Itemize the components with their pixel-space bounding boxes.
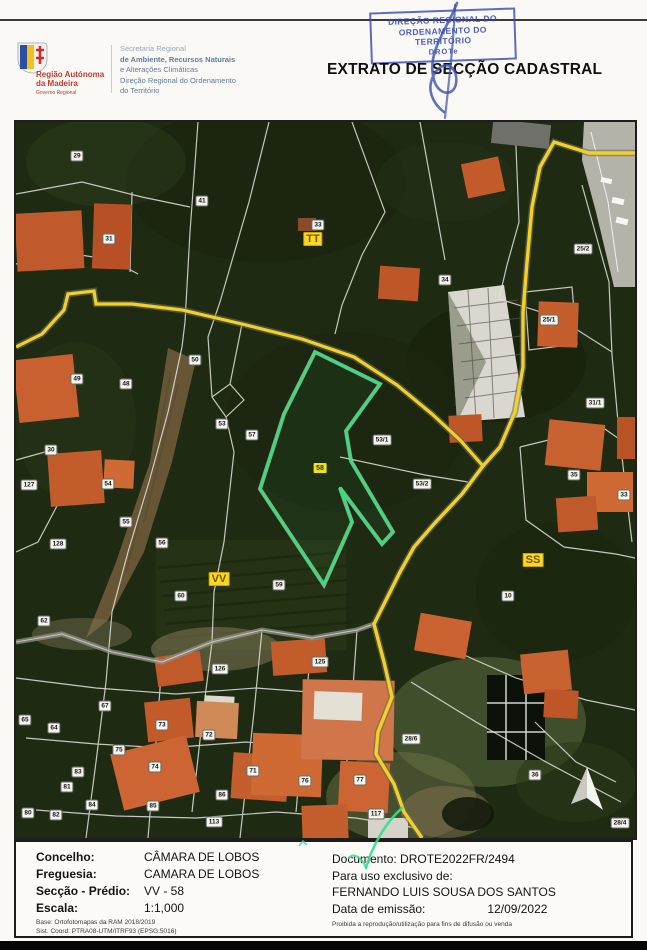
parcel-label-48: 48	[119, 379, 132, 390]
parcel-label-77: 77	[353, 775, 366, 786]
parcel-label-50: 50	[188, 355, 201, 366]
handwritten-signature	[402, 0, 492, 125]
table-row: Concelho:CÂMARA DE LOBOS	[36, 849, 316, 866]
table-row: Secção - Prédio:VV - 58	[36, 883, 316, 900]
parcel-label-30: 30	[44, 445, 57, 456]
parcel-label-56: 56	[155, 538, 168, 549]
row-label: Concelho:	[36, 849, 144, 866]
parcel-label-113: 113	[206, 817, 223, 828]
parcel-label-62: 62	[37, 616, 50, 627]
table-row: Freguesia:CAMARA DE LOBOS	[36, 866, 316, 883]
parcel-label-33: 33	[617, 490, 630, 501]
secretariat-line: do Território	[120, 86, 305, 97]
parcel-label-64: 64	[47, 723, 60, 734]
parcel-label-74: 74	[148, 762, 161, 773]
parcel-label-25/1: 25/1	[540, 315, 559, 326]
row-label: Escala:	[36, 900, 144, 917]
scan-top-line	[0, 19, 647, 21]
row-value: 1:1,000	[144, 900, 184, 917]
section-label-VV: VV	[209, 572, 230, 586]
parcel-label-layer: 294131333425/225/15049485357301275455128…	[16, 122, 635, 838]
section-label-SS: SS	[523, 553, 544, 567]
parcel-label-57: 57	[245, 430, 258, 441]
parcel-label-31/1: 31/1	[586, 398, 605, 409]
parcel-label-53/2: 53/2	[413, 479, 432, 490]
base-source-line: Sist. Coord: PTRA08-UTM/ITRF93 (EPSG:501…	[36, 928, 177, 937]
secretariat-line: Secretaria Regional	[120, 44, 305, 55]
region-name: Região Autónoma da Madeira	[36, 70, 104, 88]
parcel-label-59: 59	[272, 580, 285, 591]
parcel-label-85: 85	[146, 801, 159, 812]
parcel-label-83: 83	[71, 767, 84, 778]
region-sub: Governo Regional	[36, 90, 76, 96]
row-value: VV - 58	[144, 883, 184, 900]
parcel-label-29: 29	[70, 151, 83, 162]
parcel-label-60: 60	[174, 591, 187, 602]
secretariat-line: e Alterações Climáticas	[120, 65, 305, 76]
row-value: CAMARA DE LOBOS	[144, 866, 259, 883]
secretariat-line: de Ambiente, Recursos Naturais	[120, 55, 305, 66]
documento-value: DROTE2022FR/2494	[400, 852, 515, 866]
parcel-label-65: 65	[18, 715, 31, 726]
table-left-column: Concelho:CÂMARA DE LOBOSFreguesia:CAMARA…	[36, 849, 316, 917]
parcel-label-126: 126	[212, 664, 229, 675]
row-label: Freguesia:	[36, 866, 144, 883]
scan-bottom-band	[0, 941, 647, 950]
parcel-label-128: 128	[50, 539, 67, 550]
base-source-note: Base: Ortofotomapas da RAM 2018/2019Sist…	[36, 919, 177, 936]
parcel-label-35: 35	[567, 470, 580, 481]
table-row: Escala:1:1,000	[36, 900, 316, 917]
cadastral-map: 294131333425/225/15049485357301275455128…	[14, 120, 637, 840]
parcel-label-67: 67	[98, 701, 111, 712]
header-divider	[111, 45, 112, 93]
parcel-label-55: 55	[119, 517, 132, 528]
parcel-label-25/2: 25/2	[574, 244, 593, 255]
parcel-label-33: 33	[311, 220, 324, 231]
parcel-label-72: 72	[202, 730, 215, 741]
parcel-label-34: 34	[438, 275, 451, 286]
row-value: CÂMARA DE LOBOS	[144, 849, 259, 866]
green-checkmark	[342, 804, 412, 876]
parcel-label-127: 127	[21, 480, 38, 491]
parcel-label-73: 73	[155, 720, 168, 731]
parcel-label-54: 54	[101, 479, 114, 490]
parcel-label-80: 80	[21, 808, 34, 819]
parcel-label-71: 71	[246, 766, 259, 777]
parcel-label-28/4: 28/4	[611, 818, 630, 829]
green-mark	[297, 838, 309, 850]
parcel-label-36: 36	[528, 770, 541, 781]
secretariat-text: Secretaria Regionalde Ambiente, Recursos…	[120, 44, 305, 97]
parcel-label-82: 82	[49, 810, 62, 821]
parcel-label-31: 31	[102, 234, 115, 245]
parcel-label-86: 86	[215, 790, 228, 801]
highlighted-parcel-number: 58	[314, 463, 327, 473]
parcel-label-76: 76	[298, 776, 311, 787]
parcel-label-53/1: 53/1	[373, 435, 392, 446]
parcel-label-125: 125	[312, 657, 329, 668]
emissao-value: 12/09/2022	[487, 901, 547, 918]
parcel-label-75: 75	[112, 745, 125, 756]
holder-name: FERNANDO LUIS SOUSA DOS SANTOS	[332, 884, 622, 901]
emissao-row: Data de emissão: 12/09/2022	[332, 901, 622, 918]
parcel-label-53: 53	[215, 419, 228, 430]
legal-note: Proibida a reprodução/utilização para fi…	[332, 921, 512, 928]
secretariat-line: Direção Regional do Ordenamento	[120, 76, 305, 87]
parcel-label-84: 84	[85, 800, 98, 811]
parcel-label-41: 41	[195, 196, 208, 207]
row-label: Secção - Prédio:	[36, 883, 144, 900]
parcel-label-49: 49	[70, 374, 83, 385]
emissao-label: Data de emissão:	[332, 901, 425, 918]
info-table: Concelho:CÂMARA DE LOBOSFreguesia:CAMARA…	[14, 840, 633, 938]
parcel-label-81: 81	[60, 782, 73, 793]
parcel-label-10: 10	[501, 591, 514, 602]
parcel-label-28/6: 28/6	[402, 734, 421, 745]
base-source-line: Base: Ortofotomapas da RAM 2018/2019	[36, 919, 177, 928]
section-label-TT: TT	[303, 232, 322, 246]
